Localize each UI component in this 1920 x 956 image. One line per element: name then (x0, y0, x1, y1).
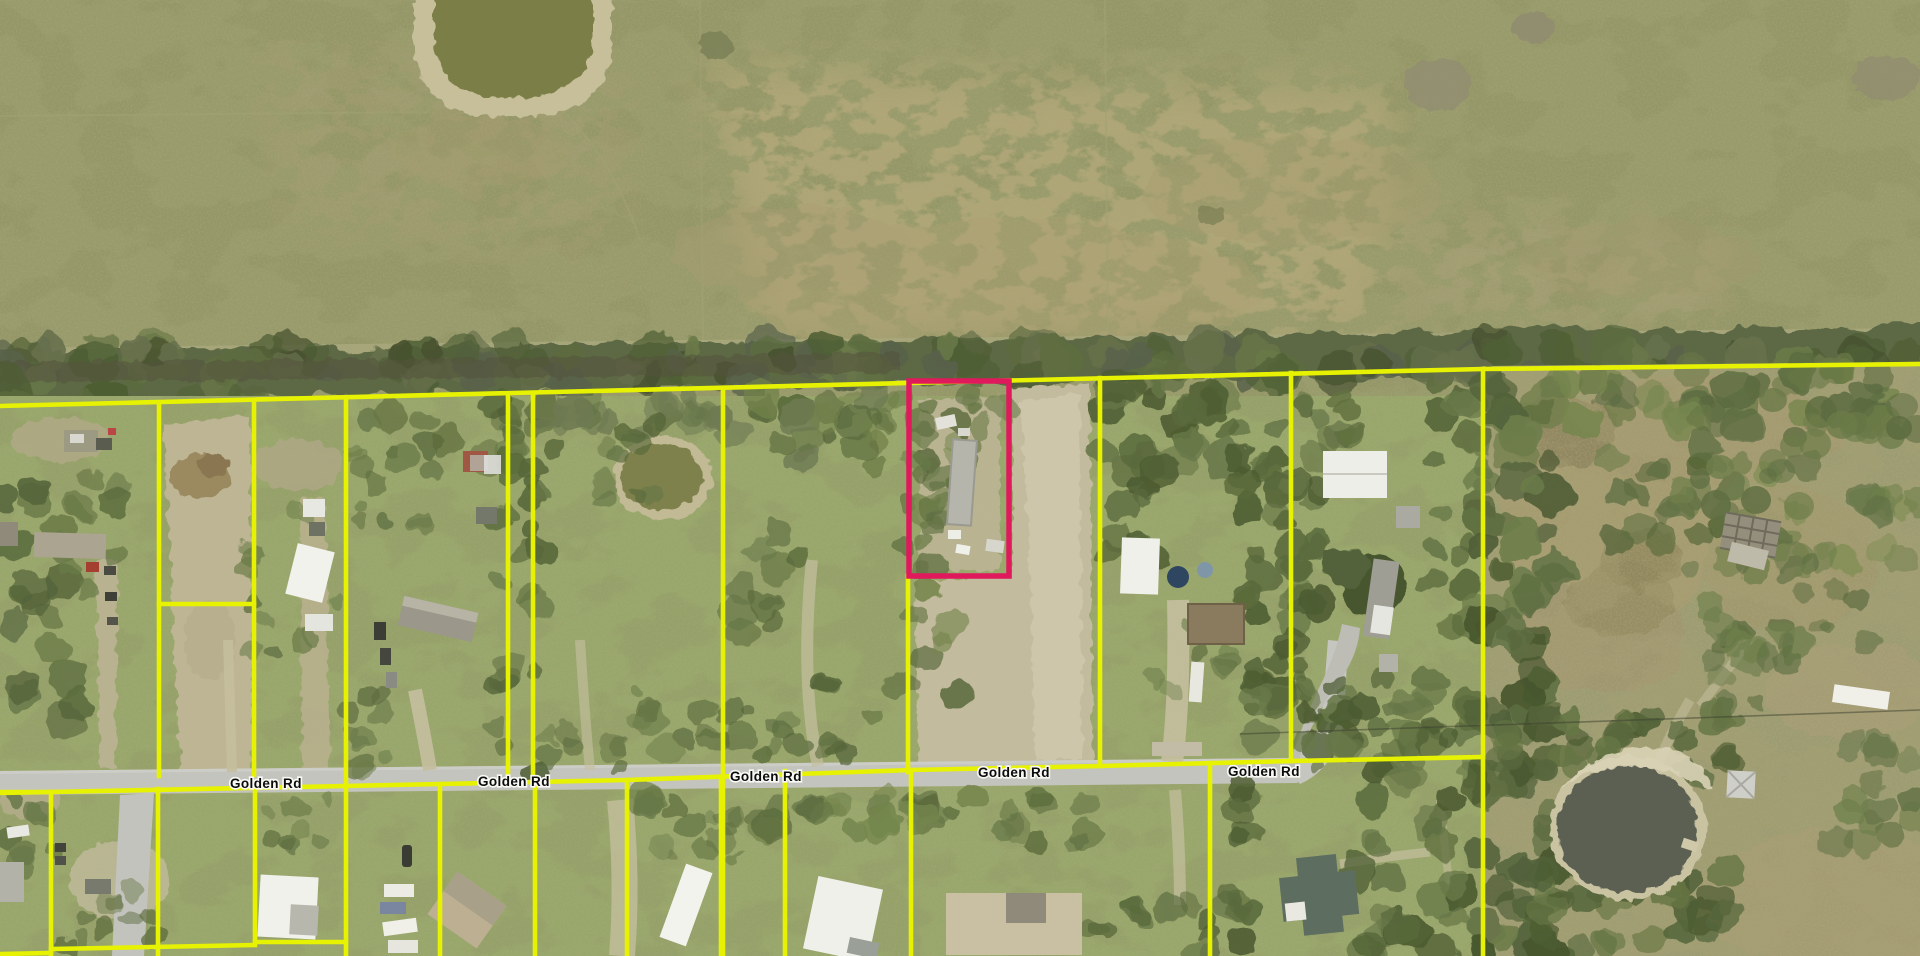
svg-text:Golden Rd: Golden Rd (1228, 764, 1300, 779)
svg-text:Golden Rd: Golden Rd (978, 765, 1050, 780)
svg-text:Golden Rd: Golden Rd (230, 776, 302, 791)
svg-text:Golden Rd: Golden Rd (730, 769, 802, 784)
svg-text:Golden Rd: Golden Rd (478, 774, 550, 789)
